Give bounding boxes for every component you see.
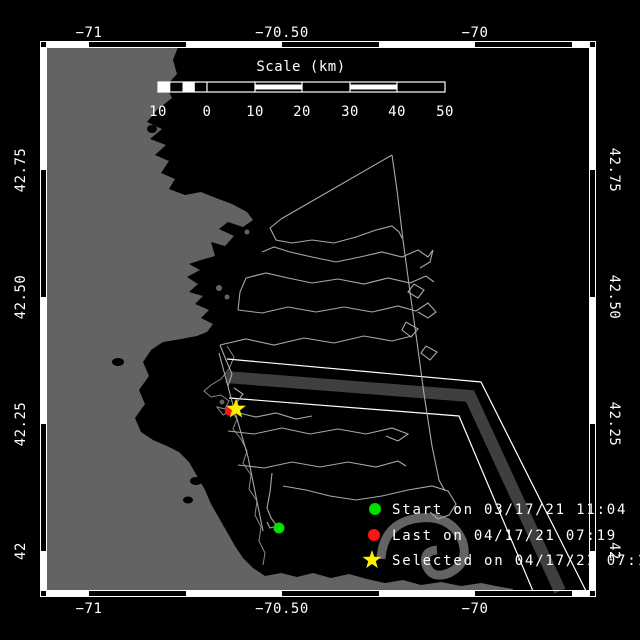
- legend-selected-label: Selected on 04/17/21 07:19: [392, 553, 640, 569]
- scale-tick-label: 10: [246, 104, 264, 120]
- scale-tick-label: 30: [341, 104, 359, 120]
- legend-last-dot: [368, 529, 380, 541]
- bottom-axis-label: −70.50: [255, 601, 309, 617]
- left-axis-label: 42.50: [13, 275, 29, 320]
- left-axis-label: 42.75: [13, 148, 29, 193]
- scale-bar-title: Scale (km): [256, 59, 345, 75]
- scale-tick-label: 50: [436, 104, 454, 120]
- top-axis-labels: −71 −70.50 −70: [76, 25, 489, 41]
- left-axis-labels: 42.75 42.50 42.25 42: [13, 148, 29, 560]
- start-position-marker: [274, 523, 285, 534]
- right-axis-labels: 42.75 42.50 42.25 42: [606, 148, 622, 560]
- map-canvas: Scale (km) 10 0 10 20 30 40 50 −71 −70.5…: [0, 0, 640, 640]
- top-axis-label: −71: [76, 25, 103, 41]
- right-axis-label: 42.50: [606, 275, 622, 320]
- bottom-axis-labels: −71 −70.50 −70: [76, 601, 489, 617]
- legend-last-label: Last on 04/17/21 07:19: [392, 528, 617, 544]
- bottom-axis-label: −71: [76, 601, 103, 617]
- bottom-axis-label: −70: [462, 601, 489, 617]
- legend-start-label: Start on 03/17/21 11:04: [392, 502, 627, 518]
- scale-tick-label: 20: [293, 104, 311, 120]
- top-axis-label: −70: [462, 25, 489, 41]
- right-axis-label: 42.75: [606, 148, 622, 193]
- scale-bar: [158, 82, 445, 92]
- scale-tick-label: 0: [203, 104, 212, 120]
- scale-tick-label: 40: [388, 104, 406, 120]
- right-axis-label: 42.25: [606, 402, 622, 447]
- left-axis-label: 42.25: [13, 402, 29, 447]
- scale-tick-label: 10: [149, 104, 167, 120]
- legend-start-dot: [369, 503, 381, 515]
- map-plot-window: Scale (km) 10 0 10 20 30 40 50 −71 −70.5…: [0, 0, 640, 640]
- top-axis-label: −70.50: [255, 25, 309, 41]
- legend: Start on 03/17/21 11:04 Last on 04/17/21…: [363, 502, 640, 569]
- left-axis-label: 42: [13, 542, 29, 560]
